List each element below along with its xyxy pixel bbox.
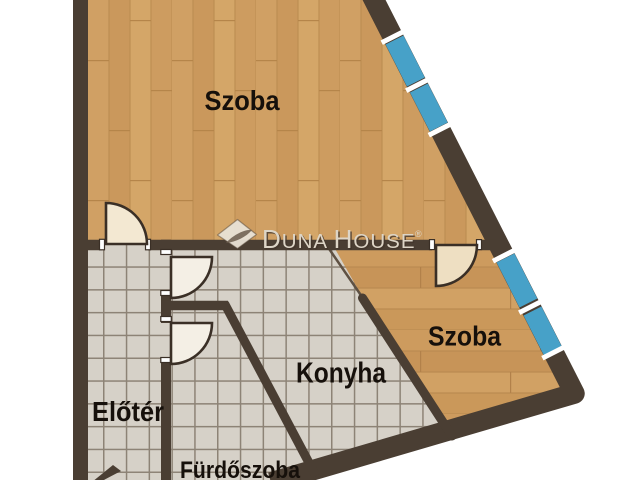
- svg-text:Fürdőszoba: Fürdőszoba: [180, 457, 300, 480]
- svg-text:Szoba: Szoba: [205, 85, 281, 116]
- svg-text:Szoba: Szoba: [428, 321, 501, 352]
- svg-text:Konyha: Konyha: [296, 358, 387, 390]
- svg-text:Előtér: Előtér: [92, 396, 164, 427]
- svg-text:®: ®: [415, 229, 422, 239]
